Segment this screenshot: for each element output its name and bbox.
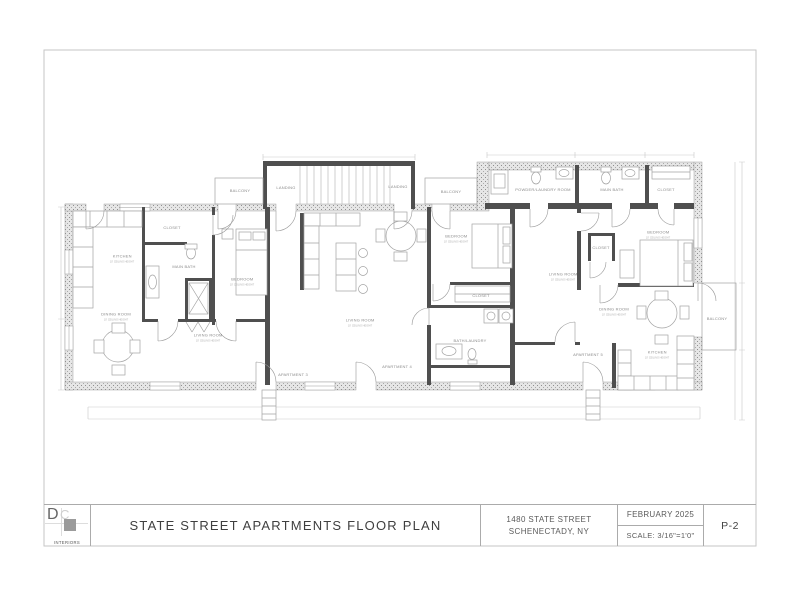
exterior-walls (65, 162, 702, 390)
drawing-title: STATE STREET APARTMENTS FLOOR PLAN (130, 518, 442, 533)
date-scale-cell: FEBRUARY 2025 SCALE: 3/16"=1'0" (617, 505, 703, 546)
stairs (300, 166, 390, 204)
title-cell: STATE STREET APARTMENTS FLOOR PLAN (90, 505, 480, 546)
address-line2: SCHENECTADY, NY (509, 526, 589, 538)
drawing-sheet: BALCONY LANDING LANDING BALCONY POWDER/L… (0, 0, 800, 600)
logo-subtitle: INTERIORS (53, 541, 81, 545)
title-block: C D INTERIORS STATE STREET APARTMENTS FL… (44, 504, 756, 546)
address-cell: 1480 STATE STREET SCHENECTADY, NY (480, 505, 617, 546)
logo-letter-d: D (47, 507, 59, 523)
address-line1: 1480 STATE STREET (506, 514, 591, 526)
drawing-date: FEBRUARY 2025 (618, 505, 703, 526)
sheet-number: P-2 (721, 520, 739, 532)
sheet-number-cell: P-2 (703, 505, 756, 546)
company-logo: C D INTERIORS (44, 505, 90, 546)
drawing-scale: SCALE: 3/16"=1'0" (618, 526, 703, 546)
interior-walls (142, 161, 694, 388)
logo-square (64, 519, 76, 531)
